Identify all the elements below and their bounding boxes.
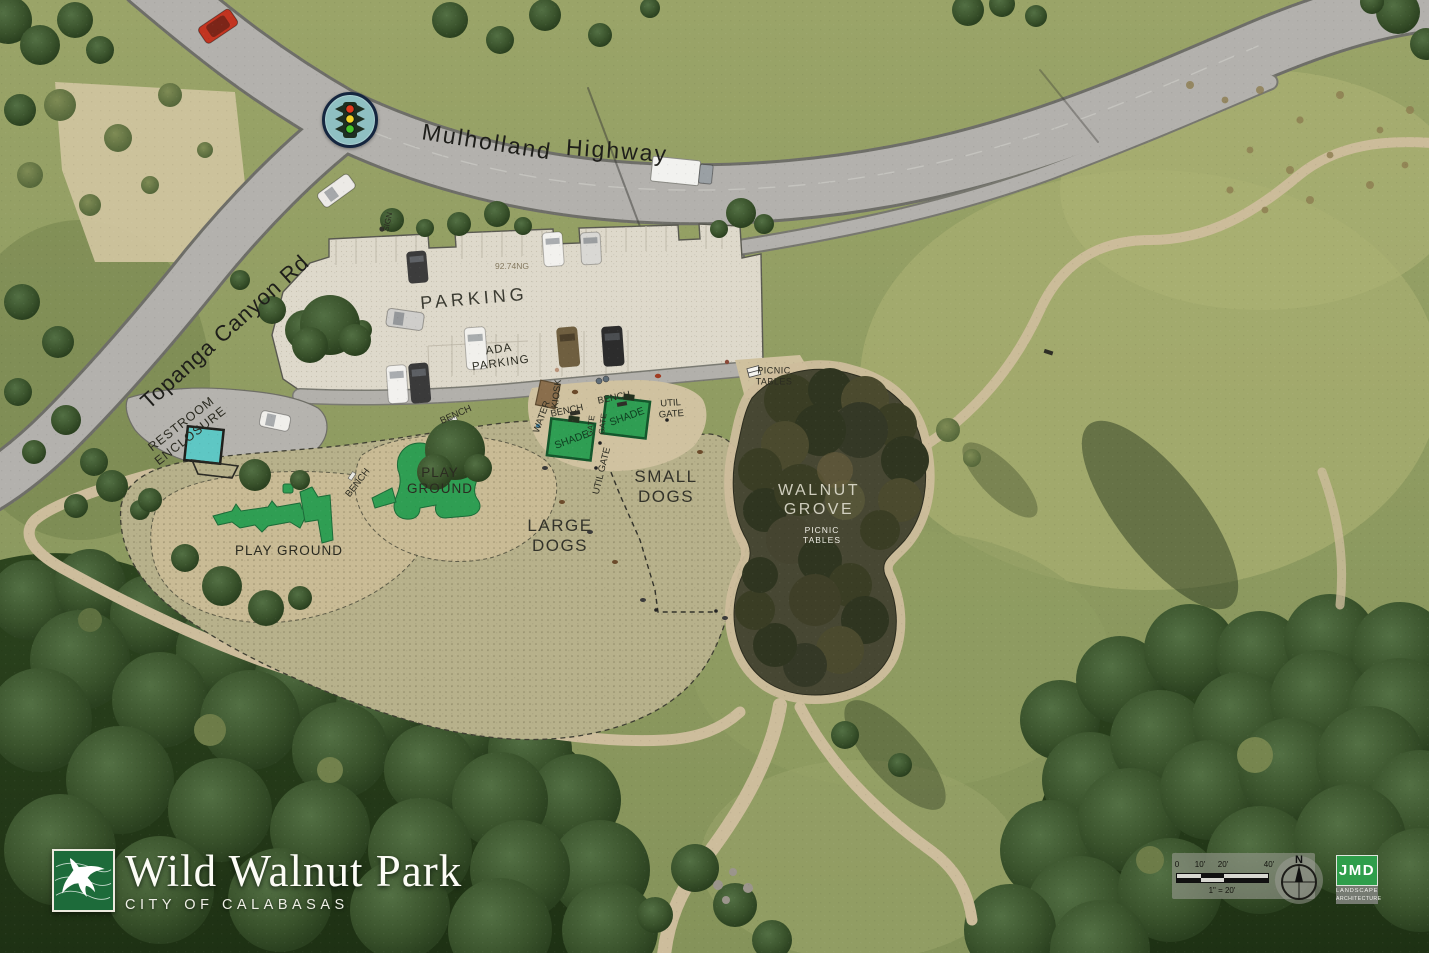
scale-ratio: 1" = 20' xyxy=(1209,886,1236,895)
park-title: Wild Walnut Park xyxy=(125,849,462,894)
jmd-caption-line1: LANDSCAPE xyxy=(1336,888,1378,896)
jmd-logo: JMD xyxy=(1336,855,1378,886)
jmd-caption: LANDSCAPE ARCHITECTURE xyxy=(1336,886,1378,904)
designer-credit: JMD LANDSCAPE ARCHITECTURE xyxy=(1336,855,1378,904)
traffic-light-glyph xyxy=(325,95,375,145)
scale-tick-0: 0 xyxy=(1175,860,1179,869)
scale-tick-10: 10' xyxy=(1195,860,1205,869)
park-branding: Wild Walnut Park CITY OF CALABASAS xyxy=(52,849,462,913)
site-plan-image: Mulholland Highway Topanga Canyon Rd SIG… xyxy=(0,0,1429,953)
scale-tick-40: 40' xyxy=(1264,860,1274,869)
photo-noise-overlay xyxy=(0,0,1429,953)
north-compass: N xyxy=(1275,856,1323,904)
north-label: N xyxy=(1295,854,1303,866)
traffic-signal-icon xyxy=(322,92,378,148)
jmd-caption-line2: ARCHITECTURE xyxy=(1336,896,1378,902)
scale-bar-graphic xyxy=(1176,873,1269,883)
hawk-logo-icon xyxy=(54,851,113,910)
scale-tick-20: 20' xyxy=(1218,860,1228,869)
city-logo xyxy=(52,849,115,912)
park-subtitle: CITY OF CALABASAS xyxy=(125,897,462,913)
brand-text: Wild Walnut Park CITY OF CALABASAS xyxy=(125,849,462,913)
aerial-site-plan-canvas xyxy=(0,0,1429,953)
